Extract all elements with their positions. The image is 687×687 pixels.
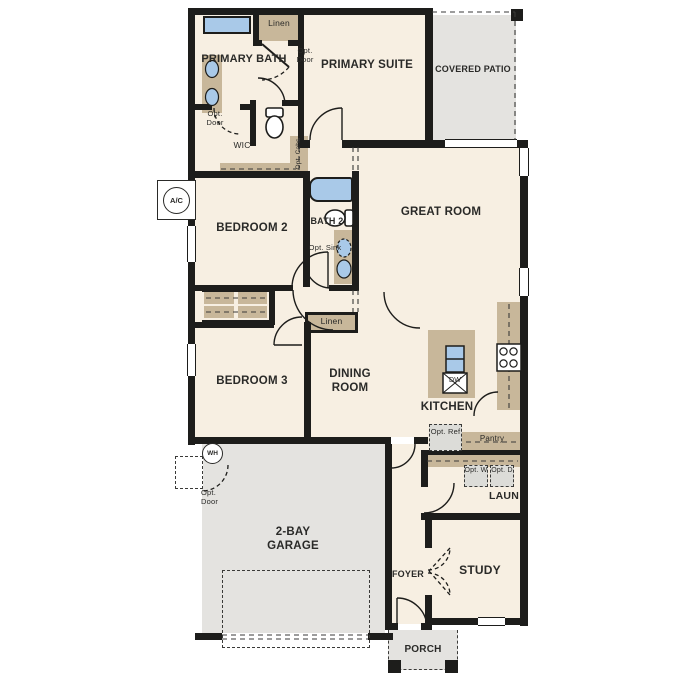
wall — [421, 513, 528, 520]
wall — [253, 40, 262, 46]
porch-label: PORCH — [396, 644, 450, 656]
covered-patio-label: COVERED PATIO — [430, 64, 516, 75]
window — [445, 139, 517, 148]
closet-shelf — [238, 306, 267, 318]
dishwasher-label: DW — [443, 377, 467, 386]
window — [187, 344, 196, 376]
wall — [421, 455, 428, 487]
ac-label: A/C — [170, 196, 183, 205]
opt-sink-label: Opt. Sink — [306, 243, 344, 252]
primary-bath-label: PRIMARY BATH — [194, 53, 294, 66]
kitchen-label: KITCHEN — [414, 400, 480, 414]
pantry-label: Pantry — [468, 434, 516, 444]
linen-upper-label: Linen — [255, 18, 303, 28]
wall — [342, 140, 445, 148]
wall — [511, 9, 523, 21]
wall — [282, 100, 298, 106]
bedroom3-label: BEDROOM 3 — [196, 374, 308, 388]
shower — [203, 16, 251, 34]
wall — [269, 287, 275, 325]
wall — [425, 618, 478, 625]
wall — [202, 287, 272, 292]
wall — [195, 633, 222, 640]
foyer-label: FOYER — [388, 569, 428, 580]
wall — [425, 8, 433, 147]
wall — [298, 15, 304, 140]
opt-door-wic-label: Opt. Door — [198, 109, 232, 127]
laundry-label: LAUN — [483, 490, 525, 503]
wall — [188, 171, 306, 178]
bathtub — [309, 177, 353, 202]
garage-door-outline — [222, 570, 370, 648]
wall — [352, 171, 359, 287]
wall — [388, 660, 401, 673]
ac-circle-icon: A/C — [163, 187, 190, 214]
kitchen-island — [428, 330, 475, 398]
ac-unit-symbol: A/C — [157, 180, 196, 220]
window — [519, 268, 529, 296]
kitchen-counter — [497, 302, 520, 410]
wall — [195, 437, 391, 444]
opt-door-garage-label: Opt. Door — [201, 488, 235, 506]
floor-plan: A/C WH Linen PRIMARY BATH Opt. Door PRIM… — [0, 0, 687, 687]
opt-ref-label: Opt. Ref — [429, 427, 462, 436]
water-heater-symbol: WH — [202, 443, 223, 464]
primary-suite-label: PRIMARY SUITE — [308, 58, 426, 72]
wall — [385, 444, 392, 630]
wall — [445, 660, 458, 673]
closet-shelf — [204, 306, 234, 318]
window — [478, 617, 505, 626]
wall — [414, 437, 428, 444]
wall — [368, 633, 393, 640]
wic-label: WIC — [222, 140, 262, 150]
wall — [329, 285, 359, 291]
garage-label: 2-BAY GARAGE — [253, 525, 333, 553]
water-heater-label: WH — [207, 450, 218, 457]
bath2-label: BATH 2 — [306, 216, 348, 227]
opt-cabs-label: Opt. Cabs — [295, 133, 303, 175]
wall — [188, 322, 274, 328]
linen-hall-label: Linen — [305, 316, 358, 326]
bath2-vanity — [334, 230, 354, 284]
window — [187, 226, 196, 262]
wall — [392, 623, 398, 630]
window — [519, 148, 529, 176]
opt-washer-label: Opt. W — [464, 467, 488, 476]
closet-shelf — [204, 292, 234, 304]
dining-room-label: DINING ROOM — [314, 367, 386, 395]
wall — [520, 140, 528, 626]
bedroom2-label: BEDROOM 2 — [197, 221, 307, 235]
opt-dryer-label: Opt. D — [490, 467, 514, 476]
great-room-label: GREAT ROOM — [400, 205, 482, 219]
wall — [425, 520, 432, 548]
covered-patio-area — [432, 15, 516, 140]
wall — [188, 8, 433, 15]
study-label: STUDY — [448, 563, 512, 578]
opt-door-garage-outline — [175, 456, 203, 489]
closet-shelf — [238, 292, 267, 304]
